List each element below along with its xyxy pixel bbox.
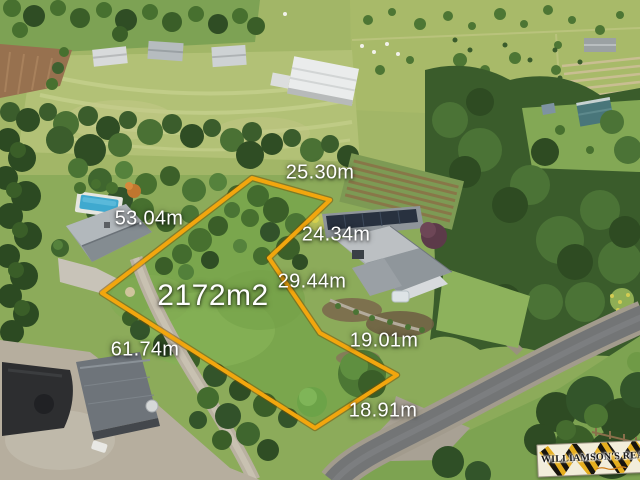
north-house-1 — [92, 46, 128, 66]
round-garden-bed — [125, 287, 135, 297]
roof-window — [352, 250, 364, 259]
north-house-3 — [211, 45, 246, 67]
aerial-photo-scene — [0, 0, 640, 480]
north-house-2 — [147, 41, 183, 61]
aerial-property-photo: 25.30m 53.04m 24.34m 29.44m 2172m2 19.01… — [0, 0, 640, 480]
hot-tub — [392, 291, 409, 302]
water-tank — [146, 400, 158, 412]
agency-signboard: WILLIAMSON'S REAL ES — [536, 439, 640, 477]
